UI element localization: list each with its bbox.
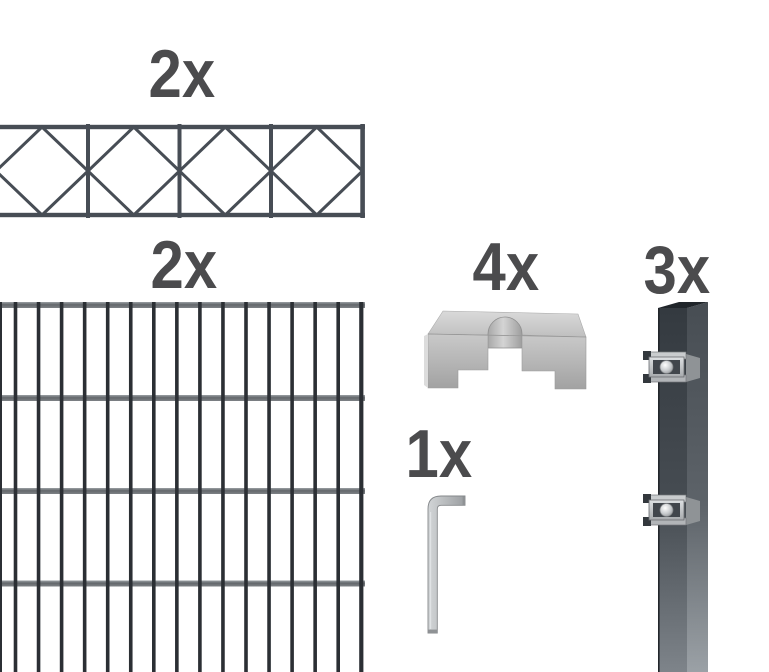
- bracket-front-right: [522, 335, 586, 389]
- qty-label-double-rod-panel: 2x: [104, 231, 264, 299]
- qty-label-fence-post: 3x: [597, 236, 757, 304]
- bracket-front-left: [428, 334, 488, 388]
- bracket-left-face: [424, 334, 428, 388]
- product-kit-image: 2x 2x: [0, 0, 769, 672]
- double-rod-panel-graphic: [0, 300, 368, 672]
- qty-label-cover-bracket: 4x: [426, 233, 586, 301]
- qty-label-text: 4x: [473, 233, 540, 301]
- bracket-dome: [488, 317, 522, 348]
- clamp-screw: [660, 504, 673, 517]
- qty-label-text: 3x: [644, 236, 711, 304]
- allen-key-graphic: [420, 490, 475, 638]
- qty-label-allen-key: 1x: [359, 420, 519, 488]
- allen-key-tip-face: [428, 630, 437, 633]
- allen-key-end-face: [463, 496, 465, 505]
- post-clamp-lower: [643, 494, 700, 526]
- qty-label-ornamental-panel: 2x: [102, 40, 262, 108]
- clamp-screw: [660, 361, 673, 374]
- cover-bracket-graphic: [420, 303, 595, 398]
- qty-label-text: 2x: [149, 40, 216, 108]
- fence-post-graphic: [640, 295, 769, 672]
- horizontal-double-rods: [0, 302, 365, 587]
- post-clamp-upper: [643, 351, 700, 383]
- vertical-rods: [0, 302, 363, 672]
- ornamental-panel-graphic: [0, 120, 370, 222]
- allen-key-body: [428, 496, 465, 633]
- qty-label-text: 1x: [406, 420, 473, 488]
- qty-label-text: 2x: [151, 231, 218, 299]
